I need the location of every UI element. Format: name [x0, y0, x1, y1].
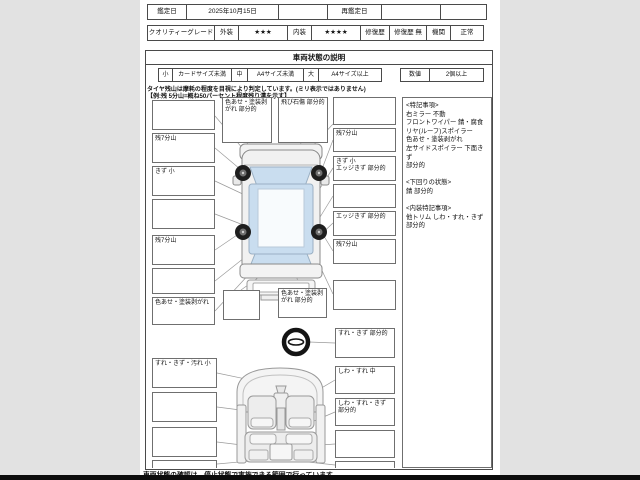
rear-left-wheel-icon [235, 224, 251, 240]
callout-left-3: きず 小 [152, 166, 215, 196]
roof-shape [258, 189, 304, 247]
callout-right-10: しわ・すれ・きず 部分的 [335, 398, 395, 426]
rear-window-shape [251, 254, 311, 264]
callout-right-9: しわ・すれ 中 [335, 366, 395, 394]
bottom-black-bar [0, 475, 640, 480]
callout-left-8: すれ・きず・汚れ 小 [152, 358, 217, 388]
cabin-interior-diagram [237, 368, 325, 463]
callout-right-11 [335, 430, 395, 458]
callout-right-1 [333, 97, 396, 125]
center-console-shape [277, 408, 285, 430]
callout-left-2: 残7分山 [152, 133, 215, 163]
rearview-mirror-shape [276, 386, 286, 393]
callout-right-12 [335, 461, 395, 468]
callout-right-8: すれ・きず 部分的 [335, 328, 395, 358]
callout-left-1 [152, 100, 215, 130]
callout-top-windshield: 飛び石傷 部分的 [278, 97, 328, 143]
callout-right-5: エッジきず 部分的 [333, 211, 396, 236]
callout-right-6: 残7分山 [333, 239, 396, 264]
car-top-view-diagram [233, 144, 329, 278]
windshield-shape [250, 167, 312, 186]
callout-right-4 [333, 184, 396, 208]
callout-mid-1 [223, 290, 260, 320]
callout-top-roof: 色あせ・塗装剥がれ 部分的 [222, 97, 272, 143]
callout-right-7 [333, 280, 396, 310]
callout-left-5: 残7分山 [152, 235, 215, 265]
remarks-panel: <特記事項> 右ミラー 不動 フロントワイパー 錆・腐食 リヤ(ルーフ)スポイラ… [402, 97, 492, 468]
callout-left-10 [152, 427, 217, 457]
callout-left-6 [152, 268, 215, 294]
callout-mid-2: 色あせ・塗装剥がれ 部分的 [278, 288, 327, 318]
steering-wheel-icon [284, 330, 308, 354]
callout-right-2: 残7分山 [333, 128, 396, 152]
callout-left-9 [152, 392, 217, 422]
callout-left-11 [152, 460, 217, 468]
callout-right-3: きず 小 エッジきず 部分的 [333, 156, 396, 181]
callout-left-7: 色あせ・塗装剥がれ [152, 297, 215, 325]
callout-left-4 [152, 199, 215, 229]
armrest-shape [270, 444, 292, 460]
rear-bumper-shape [240, 264, 322, 278]
rear-right-wheel-icon [311, 224, 327, 240]
front-left-wheel-icon [235, 165, 251, 181]
vehicle-condition-sheet: 鑑定日 2025年10月15日 再鑑定日 クオリティーグレード 外装 ★★★ 内… [140, 0, 500, 480]
front-right-wheel-icon [311, 165, 327, 181]
